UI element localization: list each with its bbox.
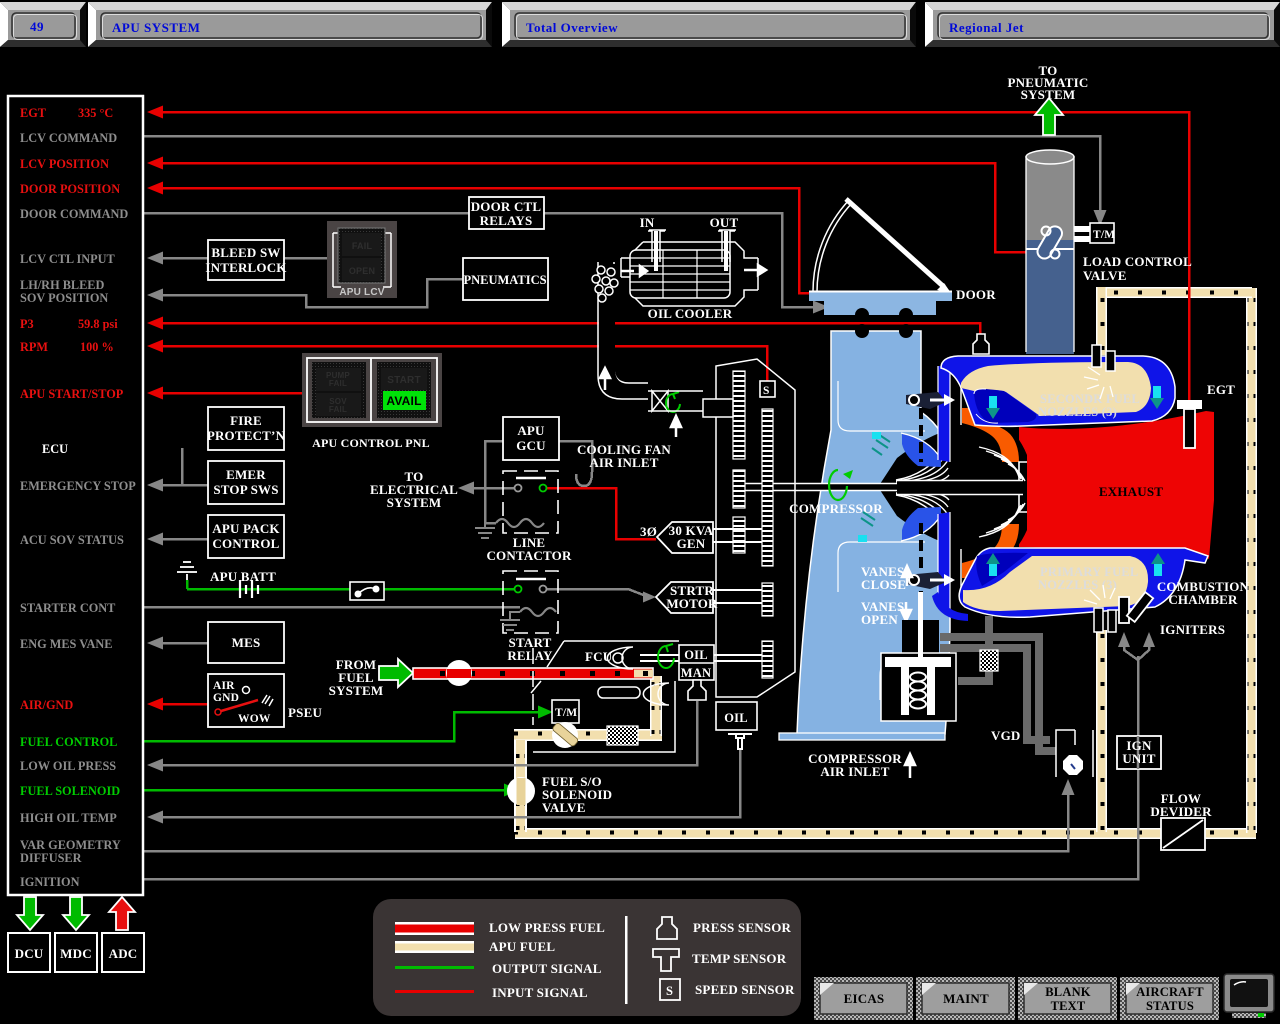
svg-text:LCV CTL INPUT: LCV CTL INPUT — [20, 252, 116, 266]
svg-text:OIL: OIL — [724, 711, 748, 725]
svg-text:OIL: OIL — [684, 648, 708, 662]
svg-text:AIR/GND: AIR/GND — [20, 698, 73, 712]
svg-text:GND: GND — [213, 692, 239, 704]
svg-text:STOP SWS: STOP SWS — [213, 482, 278, 497]
svg-text:PNEUMATICS: PNEUMATICS — [463, 273, 546, 287]
svg-text:FIRE: FIRE — [230, 413, 262, 428]
svg-text:ADC: ADC — [109, 946, 138, 961]
svg-text:EXHAUST: EXHAUST — [1099, 484, 1163, 499]
svg-text:CONTROL: CONTROL — [212, 536, 279, 551]
svg-text:SECONDR FUEL: SECONDR FUEL — [1040, 392, 1140, 406]
svg-text:APU SYSTEM: APU SYSTEM — [112, 20, 200, 35]
svg-text:DOOR COMMAND: DOOR COMMAND — [20, 207, 128, 221]
svg-text:LH/RH BLEED: LH/RH BLEED — [20, 278, 105, 292]
svg-text:HIGH OIL TEMP: HIGH OIL TEMP — [20, 811, 117, 825]
svg-text:LOW OIL PRESS: LOW OIL PRESS — [20, 759, 116, 773]
svg-text:MES: MES — [232, 635, 261, 650]
svg-text:APU PACK: APU PACK — [212, 521, 280, 536]
svg-text:EICAS: EICAS — [844, 991, 885, 1006]
svg-text:RPM: RPM — [20, 340, 48, 354]
svg-text:PROTECT’N: PROTECT’N — [207, 428, 286, 443]
svg-text:EGT: EGT — [20, 106, 47, 120]
svg-text:FAIL: FAIL — [329, 379, 347, 388]
svg-text:EMER: EMER — [226, 467, 266, 482]
svg-text:APU FUEL: APU FUEL — [489, 939, 555, 954]
svg-text:RELAYS: RELAYS — [480, 213, 533, 228]
svg-text:NOZZLES (3): NOZZLES (3) — [1038, 405, 1117, 419]
svg-text:FAIL: FAIL — [352, 241, 373, 251]
svg-text:AVAIL: AVAIL — [386, 394, 421, 408]
svg-text:APU BATT: APU BATT — [210, 569, 276, 584]
svg-text:BLANK: BLANK — [1045, 985, 1091, 999]
svg-text:VAR GEOMETRY: VAR GEOMETRY — [20, 838, 121, 852]
svg-text:ACU SOV STATUS: ACU SOV STATUS — [20, 533, 124, 547]
svg-text:GEN: GEN — [677, 536, 706, 551]
svg-text:T/M: T/M — [555, 707, 577, 719]
svg-text:UNIT: UNIT — [1122, 751, 1155, 766]
svg-text:SPEED SENSOR: SPEED SENSOR — [695, 982, 795, 997]
svg-text:DOOR: DOOR — [956, 287, 996, 302]
svg-text:INPUT SIGNAL: INPUT SIGNAL — [492, 985, 588, 1000]
svg-text:AIR INLET: AIR INLET — [820, 764, 889, 779]
svg-text:TEMP SENSOR: TEMP SENSOR — [692, 951, 787, 966]
svg-text:TEXT: TEXT — [1051, 999, 1086, 1013]
svg-text:OPEN: OPEN — [861, 612, 898, 627]
svg-text:WOW: WOW — [238, 713, 271, 725]
svg-text:SYSTEM: SYSTEM — [387, 495, 442, 510]
svg-text:APU CONTROL PNL: APU CONTROL PNL — [312, 436, 430, 450]
svg-text:MOTOR: MOTOR — [666, 596, 718, 611]
svg-text:59.8 psi: 59.8 psi — [78, 317, 118, 331]
svg-text:SYSTEM: SYSTEM — [329, 683, 384, 698]
svg-text:LOW PRESS FUEL: LOW PRESS FUEL — [489, 920, 605, 935]
svg-text:Regional Jet: Regional Jet — [949, 20, 1024, 35]
svg-text:LCV COMMAND: LCV COMMAND — [20, 131, 117, 145]
svg-text:GCU: GCU — [516, 438, 546, 453]
svg-text:PRIMARY FUEL: PRIMARY FUEL — [1040, 565, 1138, 579]
svg-text:P3: P3 — [20, 317, 34, 331]
svg-text:FAIL: FAIL — [329, 405, 347, 414]
svg-text:DCU: DCU — [15, 946, 44, 961]
svg-text:MAN: MAN — [681, 666, 711, 680]
svg-text:IN: IN — [640, 215, 655, 230]
svg-text:BLEED SW: BLEED SW — [211, 245, 280, 260]
svg-text:IGNITERS: IGNITERS — [1160, 622, 1225, 637]
svg-text:LOAD CONTROL: LOAD CONTROL — [1083, 254, 1192, 269]
svg-text:Total Overview: Total Overview — [526, 20, 618, 35]
svg-text:DOOR CTL: DOOR CTL — [471, 199, 542, 214]
svg-text:AIRCRAFT: AIRCRAFT — [1136, 985, 1204, 999]
svg-text:VGD: VGD — [991, 728, 1021, 743]
svg-text:PSEU: PSEU — [288, 705, 322, 720]
svg-text:FUEL SOLENOID: FUEL SOLENOID — [20, 784, 120, 798]
svg-text:CLOSE: CLOSE — [861, 577, 906, 592]
svg-text:APU START/STOP: APU START/STOP — [20, 387, 124, 401]
svg-text:NOZZLES (3): NOZZLES (3) — [1038, 578, 1117, 592]
svg-text:3Ø: 3Ø — [640, 524, 657, 539]
svg-text:VALVE: VALVE — [1083, 268, 1127, 283]
svg-text:OIL COOLER: OIL COOLER — [648, 306, 733, 321]
svg-text:RELAY: RELAY — [507, 648, 553, 663]
svg-text:AIR INLET: AIR INLET — [589, 455, 658, 470]
svg-text:STARTER CONT: STARTER CONT — [20, 601, 116, 615]
svg-text:SOV POSITION: SOV POSITION — [20, 291, 108, 305]
svg-text:MDC: MDC — [60, 946, 92, 961]
svg-text:IGNITION: IGNITION — [20, 875, 80, 889]
svg-text:335 °C: 335 °C — [78, 106, 113, 120]
svg-text:EGT: EGT — [1207, 382, 1235, 397]
svg-text:S: S — [763, 385, 770, 397]
svg-text:APU: APU — [517, 423, 545, 438]
svg-text:OUTPUT SIGNAL: OUTPUT SIGNAL — [492, 961, 602, 976]
svg-text:DIFFUSER: DIFFUSER — [20, 851, 82, 865]
svg-text:OPEN: OPEN — [349, 266, 375, 276]
svg-text:OUT: OUT — [710, 215, 739, 230]
svg-text:APU LCV: APU LCV — [339, 287, 384, 298]
svg-text:START: START — [387, 375, 421, 386]
svg-text:FUEL CONTROL: FUEL CONTROL — [20, 735, 117, 749]
svg-text:EMERGENCY STOP: EMERGENCY STOP — [20, 479, 136, 493]
svg-text:ENG MES VANE: ENG MES VANE — [20, 637, 112, 651]
svg-text:100 %: 100 % — [80, 340, 114, 354]
svg-text:STATUS: STATUS — [1146, 999, 1194, 1013]
svg-text:CHAMBER: CHAMBER — [1168, 592, 1238, 607]
svg-text:MAINT: MAINT — [943, 991, 989, 1006]
svg-text:ECU: ECU — [42, 442, 68, 456]
svg-text:DEVIDER: DEVIDER — [1150, 804, 1212, 819]
svg-text:LCV POSITION: LCV POSITION — [20, 157, 109, 171]
svg-text:49: 49 — [30, 19, 44, 34]
svg-text:T/M: T/M — [1093, 229, 1115, 241]
svg-text:VALVE: VALVE — [542, 800, 586, 815]
svg-text:AIR: AIR — [213, 680, 235, 692]
svg-text:PRESS SENSOR: PRESS SENSOR — [693, 920, 792, 935]
svg-text:INTERLOCK: INTERLOCK — [205, 260, 287, 275]
svg-text:DOOR POSITION: DOOR POSITION — [20, 182, 120, 196]
svg-text:COMPRESSOR: COMPRESSOR — [789, 501, 883, 516]
svg-text:CONTACTOR: CONTACTOR — [486, 548, 572, 563]
svg-text:S: S — [666, 984, 673, 998]
